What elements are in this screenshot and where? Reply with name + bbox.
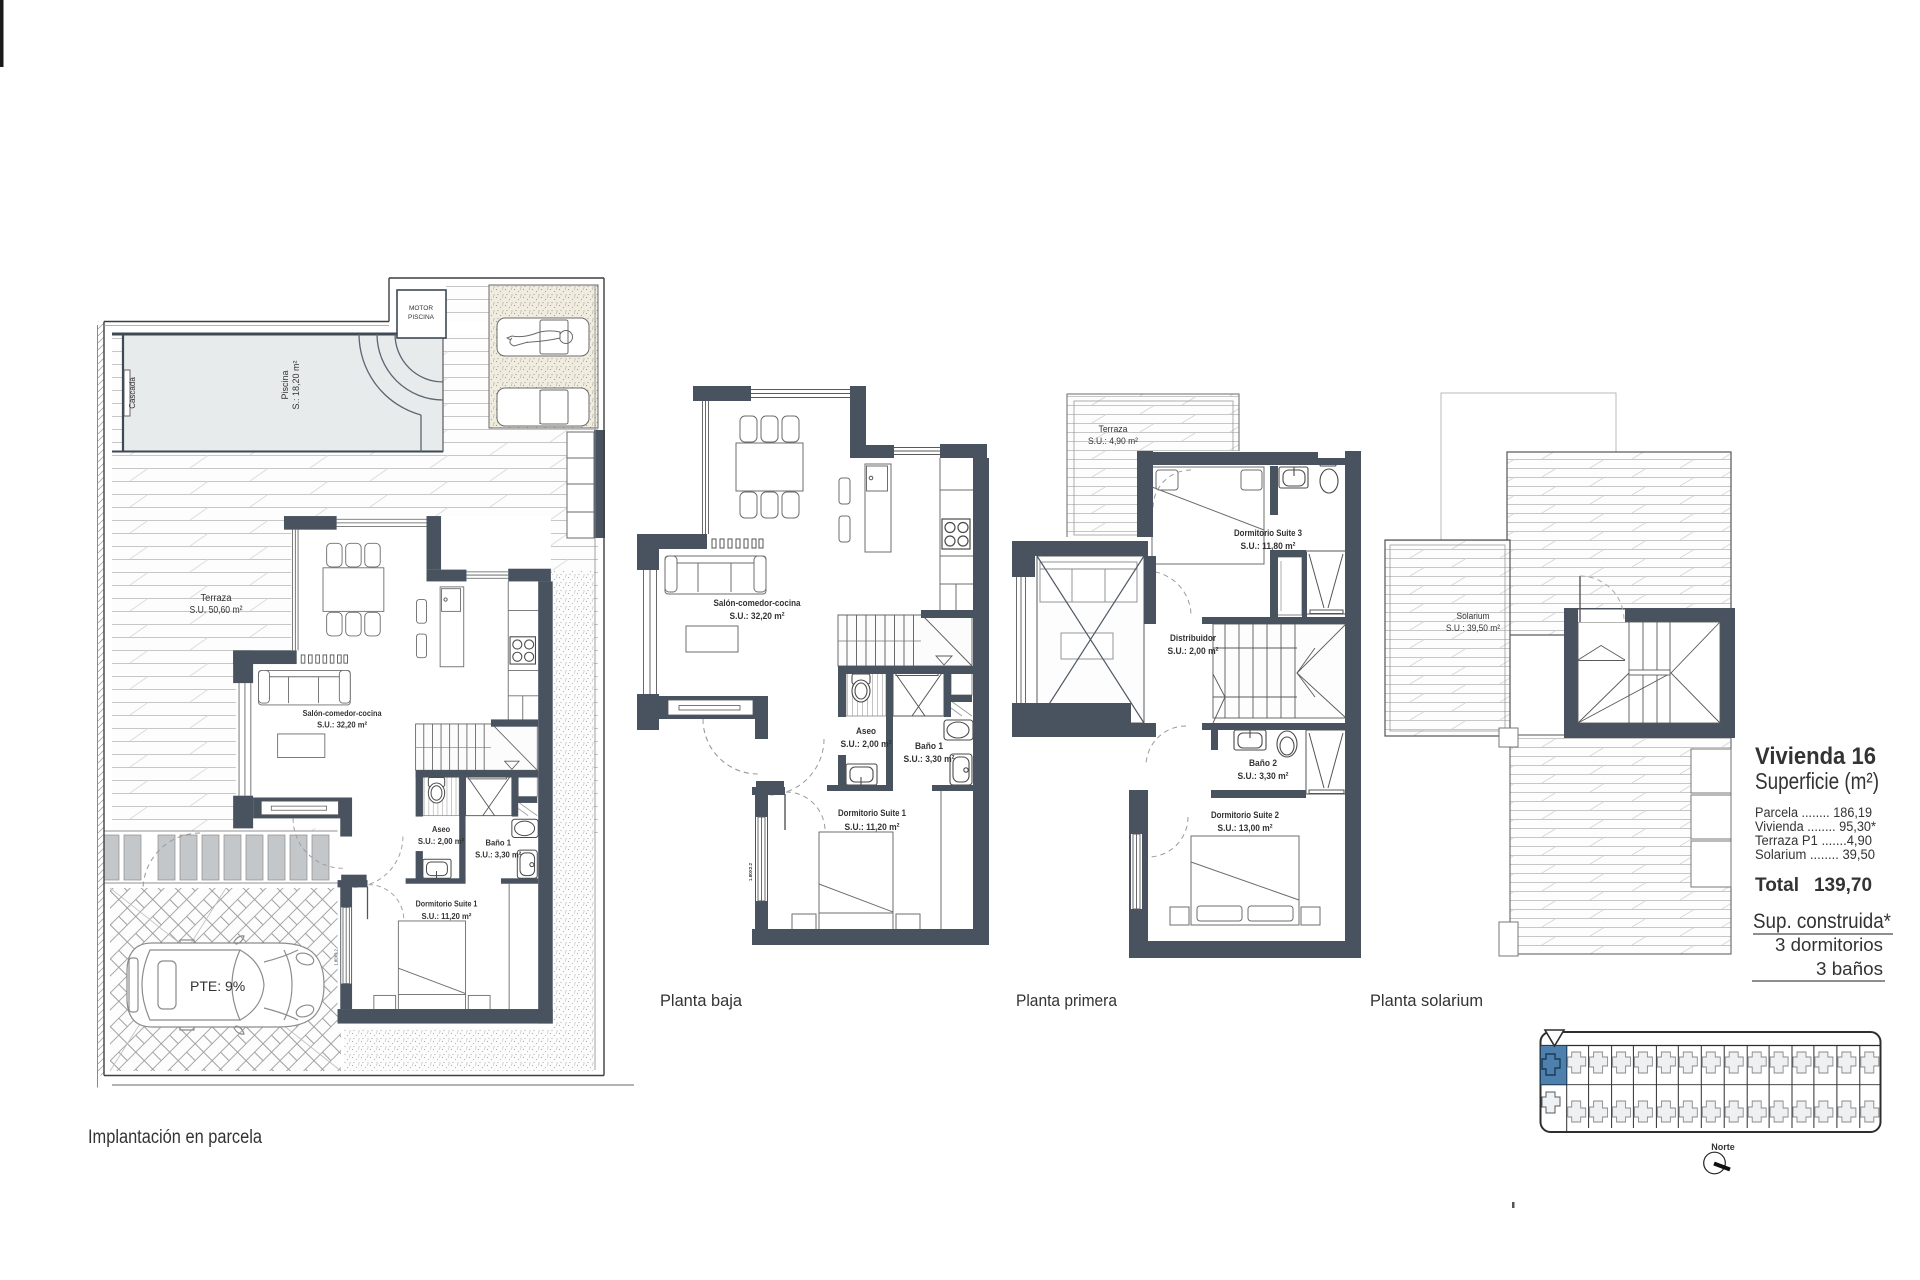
svg-text:S.U.: 4,90 m²: S.U.: 4,90 m² [1088, 436, 1138, 447]
svg-text:Solarium ........ 39,50: Solarium ........ 39,50 [1755, 847, 1875, 862]
svg-text:Vivienda ........ 95,30*: Vivienda ........ 95,30* [1755, 819, 1877, 834]
svg-text:Planta primera: Planta primera [1016, 991, 1117, 1010]
svg-text:Baño 2: Baño 2 [1249, 758, 1277, 769]
svg-text:Distribuidor: Distribuidor [1170, 633, 1216, 644]
svg-text:Planta solarium: Planta solarium [1370, 991, 1483, 1010]
svg-text:Parcela ........ 186,19: Parcela ........ 186,19 [1755, 805, 1872, 820]
svg-text:Dormitorio Suite 2: Dormitorio Suite 2 [1211, 810, 1279, 821]
svg-text:S.: 18,20 m²: S.: 18,20 m² [291, 360, 301, 409]
svg-text:Terraza: Terraza [1099, 424, 1129, 435]
svg-text:S.U. 50,60 m²: S.U. 50,60 m² [190, 605, 244, 616]
svg-text:3 dormitorios: 3 dormitorios [1775, 934, 1883, 955]
svg-text:MOTOR: MOTOR [409, 305, 433, 312]
svg-text:S.U.: 39,50 m²: S.U.: 39,50 m² [1446, 623, 1500, 634]
svg-text:S.U.: 13,00 m²: S.U.: 13,00 m² [1218, 823, 1273, 834]
svg-text:Norte: Norte [1711, 1142, 1735, 1152]
svg-text:PTE: 9%: PTE: 9% [190, 978, 245, 994]
svg-text:Piscina: Piscina [280, 370, 290, 399]
svg-text:3 baños: 3 baños [1816, 958, 1883, 979]
svg-text:S.U.: 2,00 m²: S.U.: 2,00 m² [1168, 646, 1219, 657]
svg-text:Implantación en parcela: Implantación en parcela [88, 1127, 262, 1148]
svg-text:Sup. construida*: Sup. construida* [1753, 910, 1891, 933]
svg-text:S.U.: 3,30 m²: S.U.: 3,30 m² [1238, 771, 1289, 782]
svg-text:139,70: 139,70 [1814, 875, 1872, 896]
svg-text:Terraza P1 .......4,90: Terraza P1 .......4,90 [1755, 833, 1872, 848]
svg-text:Superficie (m²): Superficie (m²) [1755, 768, 1879, 794]
svg-text:S.U.: 11,80 m²: S.U.: 11,80 m² [1241, 541, 1296, 552]
svg-text:Solarium: Solarium [1457, 611, 1490, 622]
svg-text:Vivienda 16: Vivienda 16 [1755, 743, 1876, 770]
svg-text:PISCINA: PISCINA [408, 314, 435, 321]
svg-text:Cascada: Cascada [128, 377, 137, 409]
svg-text:Terraza: Terraza [201, 593, 232, 604]
svg-text:Planta baja: Planta baja [660, 991, 743, 1010]
svg-text:Total: Total [1755, 875, 1799, 896]
svg-text:Dormitorio Suite 3: Dormitorio Suite 3 [1234, 528, 1302, 539]
